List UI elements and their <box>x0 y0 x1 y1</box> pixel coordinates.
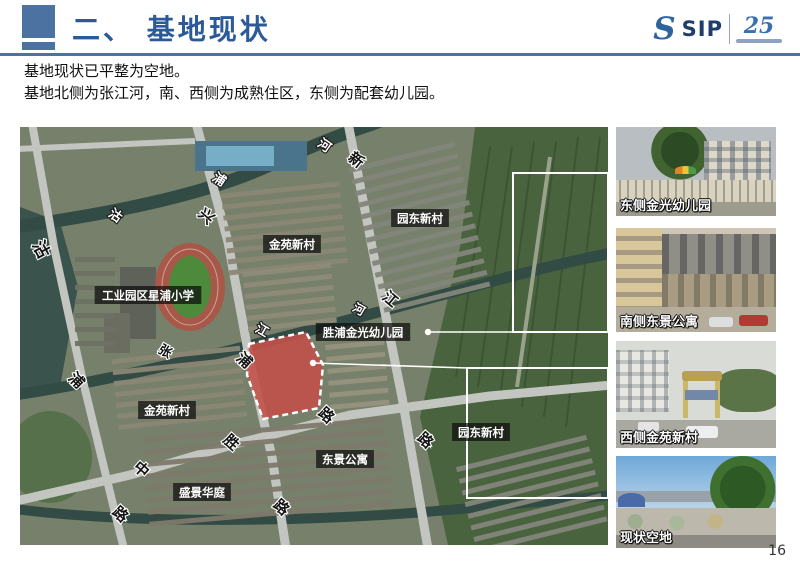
photo-caption: 南侧东景公寓 <box>620 311 698 330</box>
map-place-label: 盛景华庭 <box>173 483 231 501</box>
anniversary-number: 25 <box>744 15 775 37</box>
kindergarten-leader-dot <box>425 329 431 335</box>
intro-line-1: 基地现状已平整为空地。 <box>24 60 444 82</box>
apartment-right <box>662 234 776 274</box>
umbrella <box>618 493 645 507</box>
sip-logo: S SIP 25 <box>653 8 782 50</box>
header-rule <box>0 53 800 56</box>
intro-line-2: 基地北侧为张江河，南、西侧为成熟住区，东侧为配套幼儿园。 <box>24 82 444 104</box>
page-number: 16 <box>768 543 786 559</box>
map-place-label: 工业园区星浦小学 <box>95 286 202 304</box>
anniversary-mark: 25 <box>736 15 782 43</box>
map-place-label: 东景公寓 <box>316 450 374 468</box>
photo-vacant-site: 现状空地 <box>616 456 776 548</box>
apartment-lower-band <box>662 274 776 307</box>
gate-awning <box>685 390 719 400</box>
white-car <box>709 317 733 326</box>
photo-caption: 现状空地 <box>620 527 672 546</box>
map-place-label: 金苑新村 <box>138 401 196 419</box>
map-canvas: 沽沽浦河兴新江张江河浦浦路路中胜路路工业园区星浦小学金苑新村园东新村胜浦金光幼儿… <box>20 127 608 545</box>
header-accent-square <box>22 5 55 38</box>
photo-column: 东侧金光幼儿园 南侧东景公寓 西侧金苑新村 <box>616 127 776 548</box>
anniversary-subtext-bar <box>736 39 782 43</box>
svg-text:工业园区星浦小学: 工业园区星浦小学 <box>102 289 194 303</box>
page-title: 二、 基地现状 <box>72 8 271 48</box>
svg-text:园东新村: 园东新村 <box>458 426 504 440</box>
red-car <box>739 315 768 325</box>
pool <box>206 146 274 166</box>
svg-text:园东新村: 园东新村 <box>397 212 443 226</box>
photo-caption: 东侧金光幼儿园 <box>620 195 711 214</box>
gate-roof <box>682 371 722 381</box>
trees <box>715 369 776 412</box>
header-accent-bar <box>22 42 55 50</box>
kindergarten-building <box>704 141 771 184</box>
svg-text:金苑新村: 金苑新村 <box>268 238 315 252</box>
logo-divider <box>729 14 730 44</box>
apartment-left <box>616 228 662 311</box>
site-leader-dot <box>310 360 316 366</box>
svg-text:金苑新村: 金苑新村 <box>143 404 190 418</box>
photo-south-apartments: 南侧东景公寓 <box>616 228 776 332</box>
intro-text: 基地现状已平整为空地。 基地北侧为张江河，南、西侧为成熟住区，东侧为配套幼儿园。 <box>24 60 444 104</box>
svg-text:胜浦金光幼儿园: 胜浦金光幼儿园 <box>322 326 404 340</box>
map-place-label: 园东新村 <box>452 423 510 441</box>
photo-east-kindergarten: 东侧金光幼儿园 <box>616 127 776 216</box>
slide: 二、 基地现状 S SIP 25 基地现状已平整为空地。 基地北侧为张江河，南、… <box>0 0 800 565</box>
svg-text:东景公寓: 东景公寓 <box>322 453 368 467</box>
svg-text:盛景华庭: 盛景华庭 <box>179 486 225 500</box>
project-site-polygon <box>247 332 323 419</box>
sip-logo-text: SIP <box>682 17 723 41</box>
map-place-label: 园东新村 <box>391 209 449 227</box>
map-place-label: 胜浦金光幼儿园 <box>316 323 410 341</box>
sip-s-icon: S <box>653 14 675 45</box>
residential-building <box>616 350 669 412</box>
photo-caption: 西侧金苑新村 <box>620 427 698 446</box>
photo-west-jinyuan: 西侧金苑新村 <box>616 341 776 448</box>
site-satellite-map: 沽沽浦河兴新江张江河浦浦路路中胜路路工业园区星浦小学金苑新村园东新村胜浦金光幼儿… <box>20 127 608 545</box>
map-place-label: 金苑新村 <box>263 235 321 253</box>
umbrella <box>675 166 696 174</box>
